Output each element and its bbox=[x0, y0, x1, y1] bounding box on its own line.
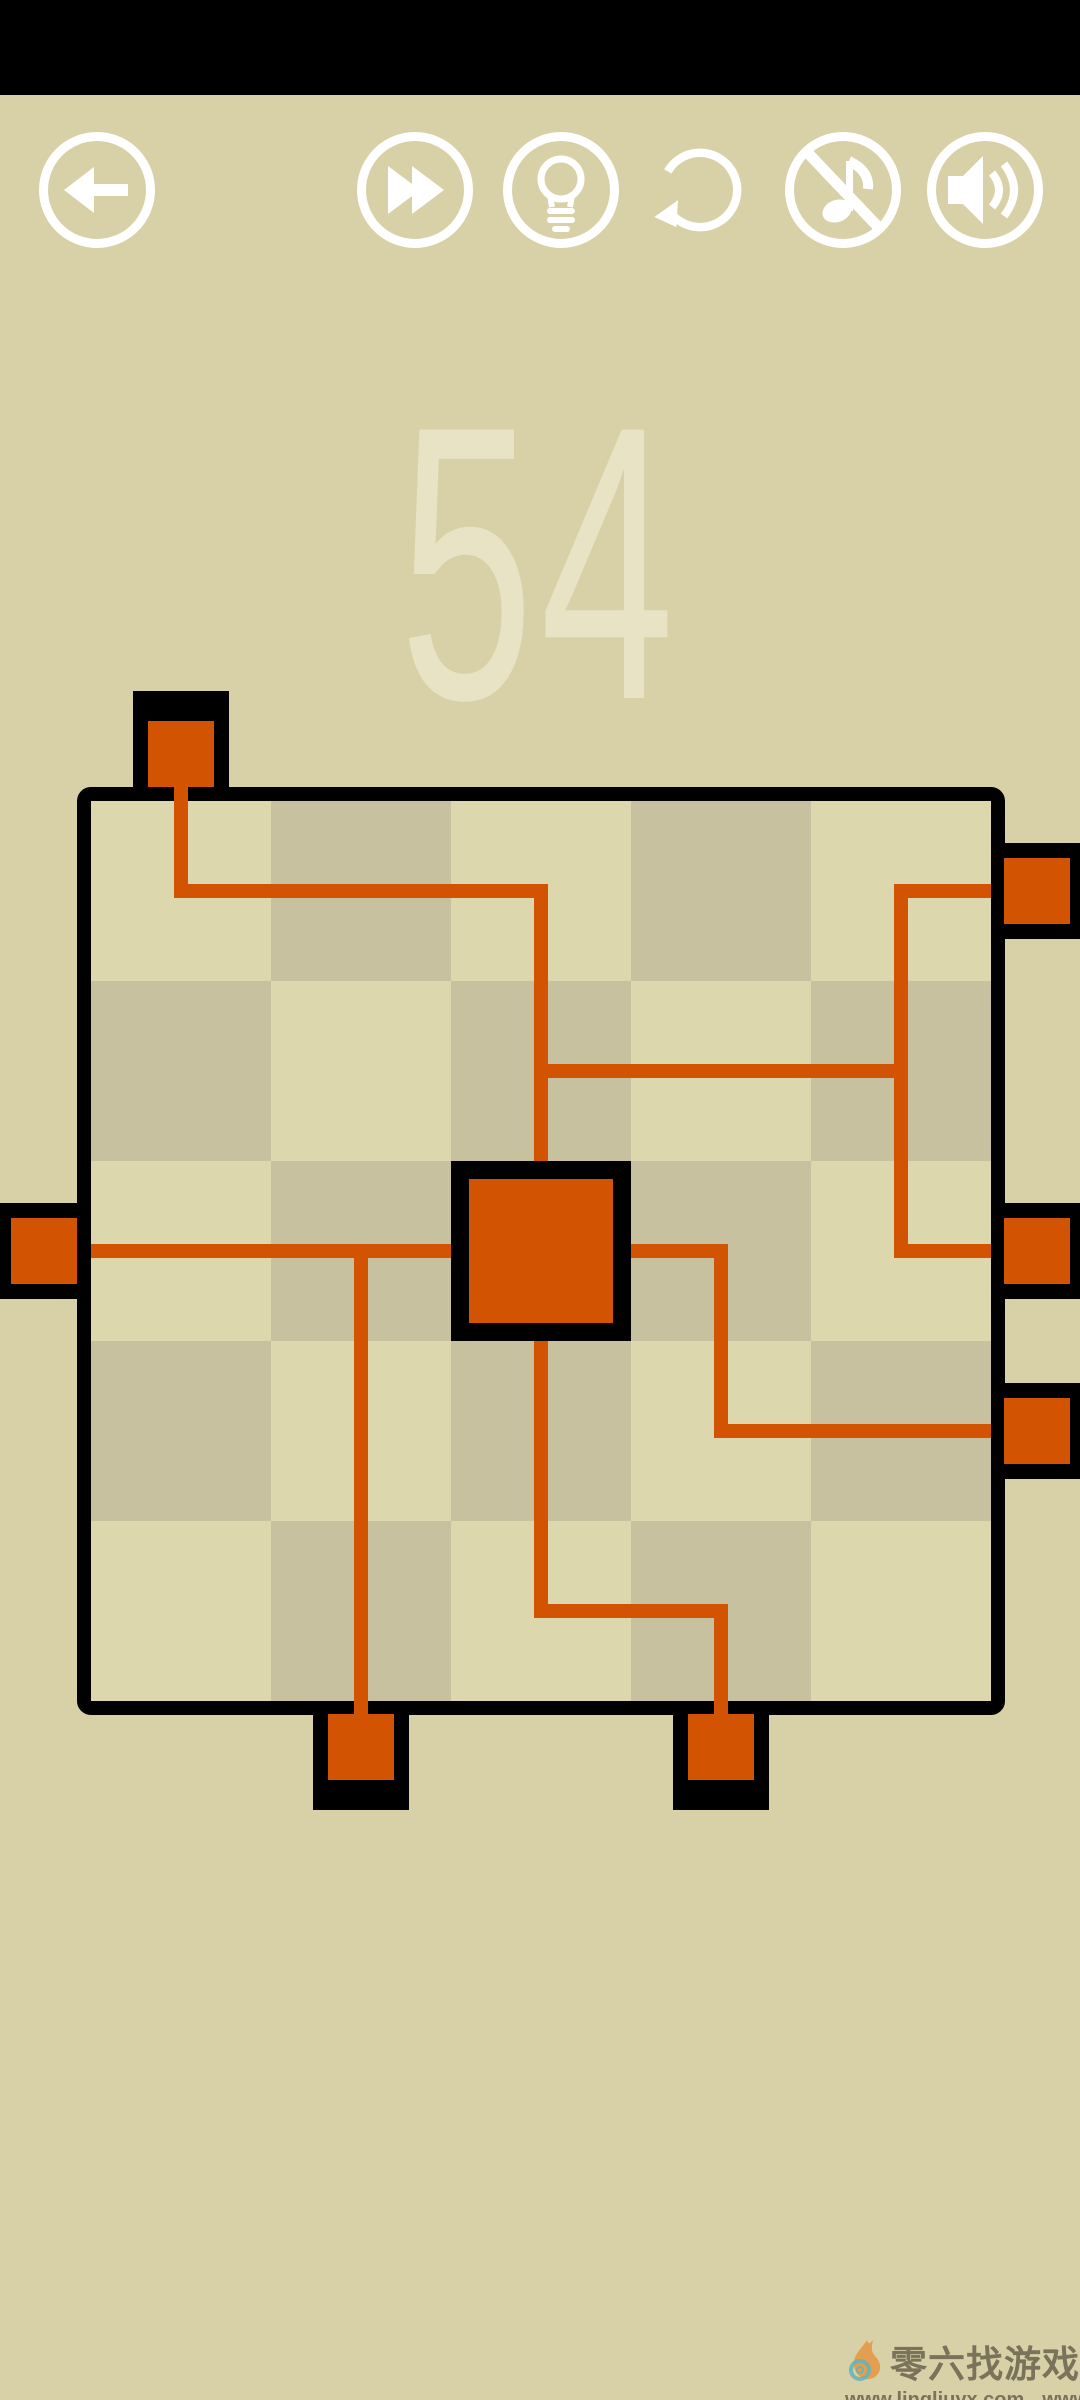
music-toggle-button[interactable] bbox=[785, 132, 901, 248]
watermark-url-2: www.06zyx.com bbox=[1042, 2389, 1080, 2400]
pipe-segment[interactable] bbox=[534, 1064, 908, 1078]
edge-connector bbox=[148, 721, 214, 787]
game-screen: 54 零六找游戏 www.lingliuyx.comwww.06zyx.com bbox=[0, 0, 1080, 2400]
pipe-segment[interactable] bbox=[894, 884, 908, 1258]
edge-connector bbox=[1004, 858, 1070, 924]
board-cell bbox=[91, 981, 271, 1161]
pipe-segment[interactable] bbox=[91, 1244, 451, 1258]
arrow-left-icon bbox=[48, 141, 146, 239]
pipe-segment[interactable] bbox=[714, 1604, 728, 1714]
skip-button[interactable] bbox=[357, 132, 473, 248]
music-note-off-icon bbox=[794, 141, 892, 239]
watermark: 零六找游戏 www.lingliuyx.comwww.06zyx.com bbox=[845, 2334, 1080, 2400]
pipe-segment[interactable] bbox=[714, 1424, 991, 1438]
pipe-segment[interactable] bbox=[174, 787, 188, 898]
lightbulb-icon bbox=[512, 141, 610, 239]
sound-toggle-button[interactable] bbox=[927, 132, 1043, 248]
board-cell bbox=[91, 1341, 271, 1521]
fast-forward-icon bbox=[366, 141, 464, 239]
undo-button[interactable] bbox=[642, 132, 758, 248]
level-number: 54 bbox=[205, 368, 875, 758]
pipe-segment[interactable] bbox=[354, 1244, 368, 1714]
brand-name: 零六找游戏 bbox=[890, 2334, 1080, 2388]
status-bar bbox=[0, 0, 1080, 95]
pipe-segment[interactable] bbox=[534, 1604, 728, 1618]
hint-button[interactable] bbox=[503, 132, 619, 248]
edge-connector bbox=[1004, 1398, 1070, 1464]
pipe-segment[interactable] bbox=[714, 1244, 728, 1438]
watermark-url-1: www.lingliuyx.com bbox=[845, 2389, 1024, 2400]
board-cell bbox=[631, 801, 811, 981]
edge-connector bbox=[688, 1714, 754, 1780]
pipe-segment[interactable] bbox=[534, 884, 548, 1161]
pipe-segment[interactable] bbox=[534, 1341, 548, 1618]
pipe-segment[interactable] bbox=[894, 884, 991, 898]
pipe-segment[interactable] bbox=[894, 1244, 991, 1258]
undo-arrow-icon bbox=[651, 132, 749, 248]
edge-connector bbox=[328, 1714, 394, 1780]
brand-flame-icon bbox=[845, 2339, 885, 2383]
back-button[interactable] bbox=[39, 132, 155, 248]
edge-connector bbox=[11, 1218, 77, 1284]
center-block bbox=[469, 1179, 613, 1323]
watermark-urls: www.lingliuyx.comwww.06zyx.com bbox=[845, 2389, 1080, 2400]
pipe-segment[interactable] bbox=[174, 884, 548, 898]
edge-connector bbox=[1004, 1218, 1070, 1284]
speaker-icon bbox=[936, 141, 1034, 239]
